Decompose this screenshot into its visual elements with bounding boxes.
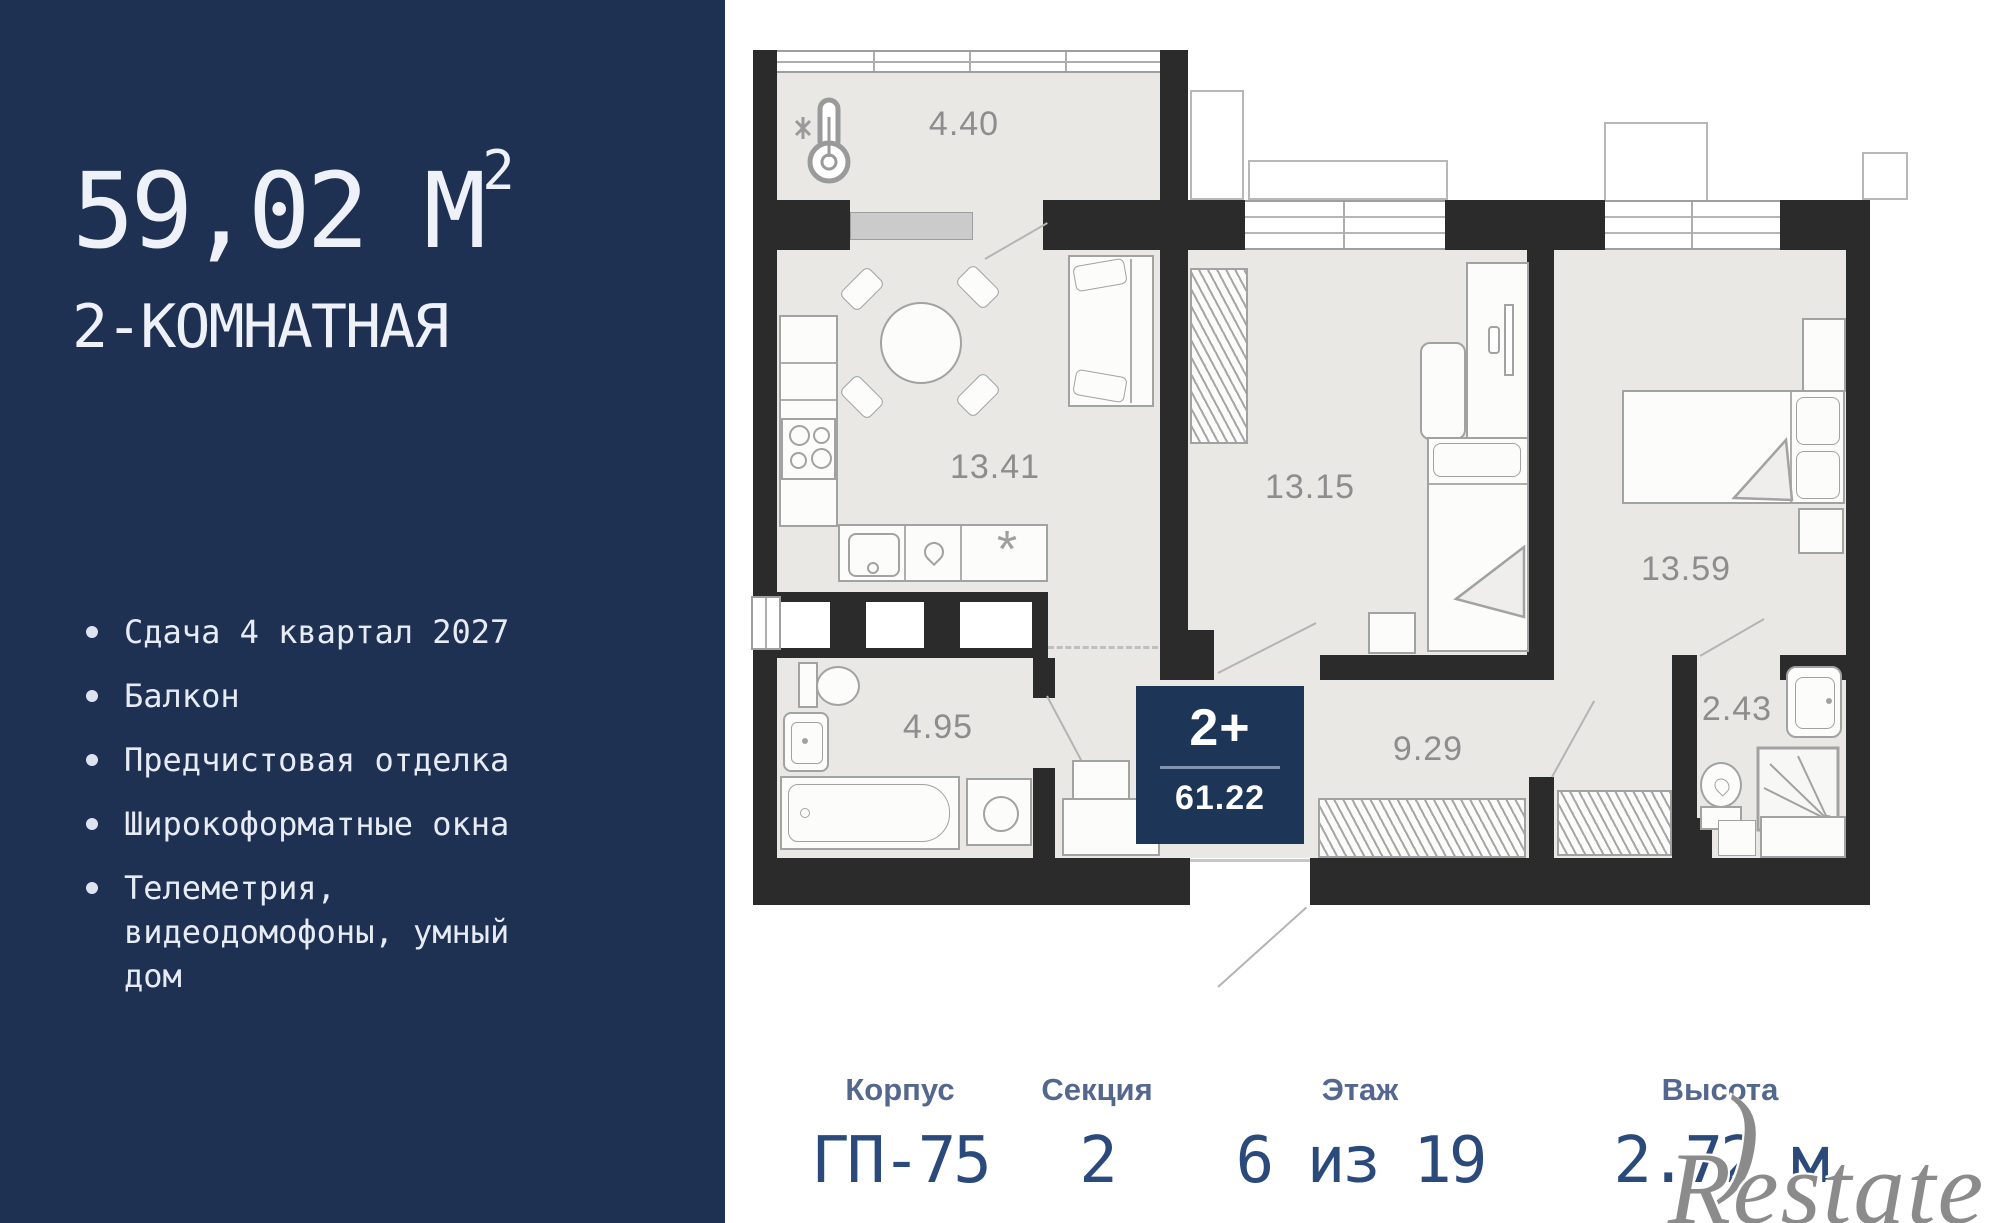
counter-divider [781, 399, 836, 401]
window-tick [1343, 202, 1345, 248]
feature-list: Сдача 4 квартал 2027 Балкон Предчистовая… [86, 610, 566, 998]
snowflake-icon: * [978, 520, 1036, 580]
bathroom-sink [1786, 666, 1842, 738]
toilet-bowl [1700, 762, 1742, 808]
facade-ledge [1862, 152, 1908, 200]
info-value: 6 из 19 [1200, 1124, 1520, 1198]
wall-bathroom1-right [1033, 658, 1055, 698]
listing-card: 59,02 М2 2-КОМНАТНАЯ Сдача 4 квартал 202… [0, 0, 2000, 1223]
toilet-bowl [816, 666, 860, 706]
window-bedroom2 [1605, 200, 1780, 250]
wardrobe [1557, 790, 1672, 856]
feature-item: Телеметрия, видеодомофоны, умный дом [86, 866, 566, 998]
feature-text: Широкоформатные окна [124, 802, 509, 846]
info-label: Этаж [1200, 1072, 1520, 1108]
door-leaf-entrance [1217, 907, 1307, 988]
balcony-window [850, 212, 973, 240]
feature-item: Балкон [86, 674, 566, 718]
badge-divider [1160, 766, 1280, 769]
glazing-tick [1065, 52, 1067, 71]
wall-facade [753, 200, 850, 250]
window-side [751, 596, 781, 650]
burner [811, 448, 832, 469]
watermark-logo: Restate [1668, 1138, 1985, 1223]
room-area-bedroom1: 13.15 [1265, 468, 1355, 507]
glazing-tick [969, 52, 971, 71]
wall-living-bedroom1 [1160, 250, 1188, 630]
thermometer-cold-icon [792, 95, 854, 187]
cabinet [1760, 816, 1846, 858]
balcony-glazing [775, 50, 1163, 73]
desk-item [1488, 326, 1500, 354]
area-value: 59,02 М [72, 150, 482, 272]
apartment-area-headline: 59,02 М2 [72, 150, 515, 272]
wall-exterior-bottom [1310, 858, 1870, 905]
water-drop-icon [920, 538, 948, 566]
wall-exterior-right [1846, 200, 1870, 905]
glazing-tick [873, 52, 875, 71]
washing-machine [966, 778, 1032, 846]
feature-text: Сдача 4 квартал 2027 [124, 610, 509, 654]
room-area-hallway: 9.29 [1393, 730, 1463, 769]
wall-niche [866, 602, 924, 648]
blanket-fold [1730, 436, 1796, 504]
bullet-icon [86, 882, 98, 894]
room-area-bedroom2: 13.59 [1641, 550, 1731, 589]
window-line [1245, 216, 1445, 218]
stove-icon [781, 418, 836, 480]
wall-exterior-left [753, 50, 777, 905]
bullet-icon [86, 818, 98, 830]
kitchen-sink-counter: * [838, 524, 1048, 582]
sofa-cushion [1072, 369, 1128, 404]
feature-item: Сдача 4 квартал 2027 [86, 610, 566, 654]
feature-item: Предчистовая отделка [86, 738, 566, 782]
washer-door [983, 796, 1019, 832]
bathroom-sink [783, 712, 829, 772]
bullet-icon [86, 626, 98, 638]
wall-facade [1445, 200, 1605, 250]
area-superscript: 2 [482, 139, 515, 202]
badge-rooms: 2+ [1136, 698, 1304, 758]
sidebar: 59,02 М2 2-КОМНАТНАЯ Сдача 4 квартал 202… [0, 0, 725, 1223]
wall-bedroom1-hallway [1320, 655, 1554, 680]
room-area-balcony: 4.40 [929, 105, 999, 144]
window-sill-ledge [1248, 160, 1448, 200]
apartment-type: 2-КОМНАТНАЯ [72, 292, 447, 362]
wall-bedroom1-bedroom2 [1527, 250, 1554, 680]
blanket-fold [1452, 545, 1528, 621]
nightstand [1368, 612, 1416, 654]
bathtub-drain [800, 808, 810, 818]
counter-divider [781, 362, 836, 364]
wall-bathroom1-right [1033, 768, 1055, 858]
window-line [765, 598, 767, 648]
burner [789, 425, 810, 446]
wall-stub [1529, 777, 1554, 858]
open-boundary-dashed [1048, 646, 1158, 649]
feature-text: Балкон [124, 674, 240, 718]
shoe-cabinet-top [1072, 760, 1130, 800]
bullet-icon [86, 754, 98, 766]
badge-total-area: 61.22 [1136, 779, 1304, 818]
wall-exterior-bottom [758, 858, 1190, 905]
bullet-icon [86, 690, 98, 702]
wall-stub [1160, 630, 1214, 680]
sink-drain [802, 738, 808, 744]
sink-drain [1826, 698, 1832, 704]
info-col-etazh: Этаж 6 из 19 [1200, 1072, 1520, 1198]
sink-drain [867, 562, 879, 574]
window-bedroom1 [1245, 200, 1445, 250]
blanket-line [1429, 483, 1527, 485]
sofa-cushion [1072, 258, 1128, 293]
wall-facade [1043, 200, 1245, 250]
burner [790, 452, 807, 469]
toilet-drain [1711, 775, 1732, 796]
desk-chair [1420, 342, 1466, 440]
facade-ledge [1604, 122, 1708, 202]
entrance-threshold [1190, 859, 1310, 862]
burner [813, 427, 830, 444]
bathtub-basin [788, 784, 950, 842]
window-line [1245, 232, 1445, 234]
facade-ledge [1190, 90, 1244, 200]
pillow [1433, 443, 1521, 477]
feature-text: Предчистовая отделка [124, 738, 509, 782]
room-area-kitchen-living: 13.41 [950, 448, 1040, 487]
desk [1466, 262, 1529, 442]
feature-item: Широкоформатные окна [86, 802, 566, 846]
monitor-icon [1504, 304, 1514, 376]
dining-table [880, 302, 962, 384]
sofa [1068, 255, 1154, 407]
feature-text: Телеметрия, видеодомофоны, умный дом [124, 866, 566, 998]
nightstand [1798, 508, 1844, 554]
room-area-bathroom1: 4.95 [903, 708, 973, 747]
counter-divider [960, 526, 962, 580]
bathtub [780, 776, 960, 850]
nightstand [1802, 318, 1846, 392]
duct-box [1718, 820, 1756, 856]
room-area-bathroom2: 2.43 [1702, 690, 1772, 729]
wall-niche [960, 602, 1032, 648]
pillow [1796, 451, 1840, 499]
wardrobe [1318, 798, 1526, 858]
sofa-back-line [1130, 259, 1132, 403]
toilet-tank [798, 662, 818, 708]
wardrobe [1190, 268, 1248, 444]
counter-divider [904, 526, 906, 580]
window-tick [1691, 202, 1693, 248]
pillow [1796, 397, 1840, 445]
apartment-badge: 2+ 61.22 [1136, 686, 1304, 844]
